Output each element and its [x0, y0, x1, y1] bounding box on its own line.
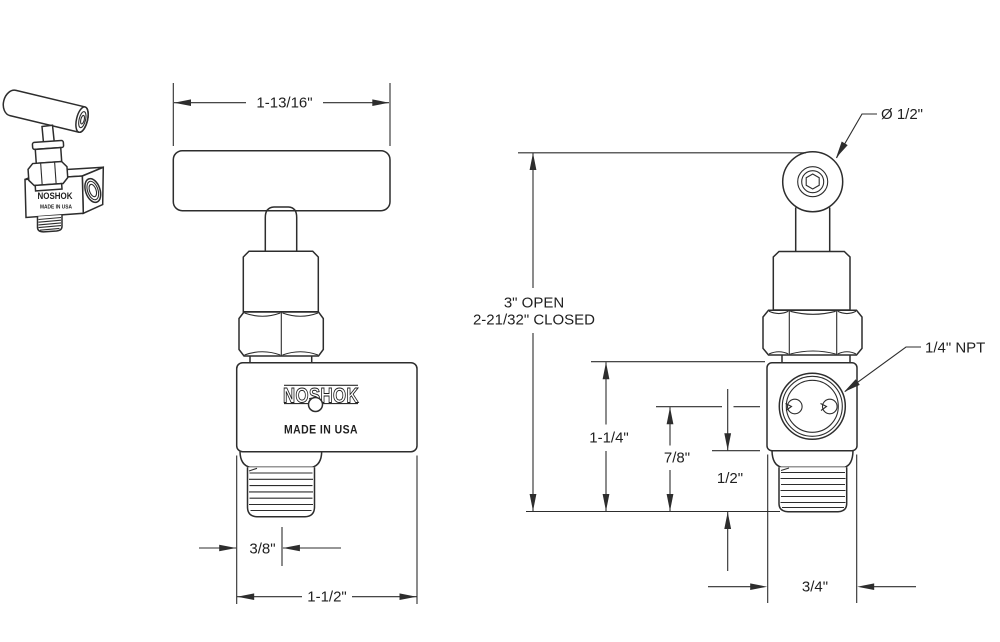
port-size-label: 1/4" NPT: [925, 340, 985, 357]
dim-height-open-label: 3" OPEN: [504, 295, 564, 312]
front-logo-ring: [309, 398, 323, 412]
valve-technical-drawing: NOSHOK MADE IN USA NOSHOK MADE IN USA: [0, 0, 1000, 642]
iso-view: NOSHOK MADE IN USA: [1, 88, 104, 232]
front-thread-shoulder: [240, 452, 322, 468]
front-bonnet: [243, 251, 318, 312]
front-stem: [265, 207, 296, 252]
dim-port-height-label: 7/8": [664, 450, 690, 467]
side-view-dimensions: 3" OPEN 2-21/32" CLOSED 1-1/4" 7/8": [473, 106, 985, 603]
dim-handle-dia-label: Ø 1/2": [881, 106, 923, 123]
dim-thread-length-label: 1/2": [717, 470, 743, 487]
front-neck: [250, 356, 312, 363]
front-brand-logo: NOSHOK: [283, 385, 359, 412]
dim-port-size: 1/4" NPT: [844, 340, 985, 393]
iso-stem: [42, 125, 54, 143]
iso-brand-label: NOSHOK: [38, 191, 73, 201]
dim-body-height-label: 1-1/4": [589, 430, 629, 447]
side-thread-shoulder: [772, 451, 853, 468]
dim-handle-width-label: 1-13/16": [256, 95, 312, 112]
front-handle: [173, 151, 390, 211]
dim-port-center-height: 7/8": [656, 407, 760, 511]
side-hex-nut: [763, 310, 862, 355]
side-threads: [779, 467, 847, 512]
front-view: NOSHOK MADE IN USA: [173, 151, 417, 517]
dim-body-height: 1-1/4": [589, 362, 765, 511]
side-view: [763, 152, 862, 512]
iso-bonnet: [32, 140, 64, 163]
dim-height-closed-label: 2-21/32" CLOSED: [473, 312, 595, 329]
side-bonnet: [773, 252, 850, 311]
front-hex-nut: [239, 312, 323, 356]
front-made-in-label: MADE IN USA: [284, 425, 358, 437]
side-neck: [782, 355, 850, 363]
dim-inlet-offset-label: 3/8": [249, 541, 275, 558]
dim-overall-height: 3" OPEN 2-21/32" CLOSED: [473, 153, 806, 512]
iso-threads: [38, 215, 63, 232]
dim-handle-width: 1-13/16": [173, 83, 390, 146]
drawing-canvas: NOSHOK MADE IN USA NOSHOK MADE IN USA: [0, 0, 1000, 642]
dim-body-depth-label: 3/4": [802, 579, 828, 596]
iso-made-in-label: MADE IN USA: [40, 205, 72, 211]
dim-thread-length: 1/2": [712, 389, 760, 571]
front-threads: [248, 467, 315, 517]
side-handle-end: [783, 152, 843, 212]
dim-handle-diameter: Ø 1/2": [836, 106, 923, 158]
dim-body-width-label: 1-1/2": [307, 589, 347, 606]
